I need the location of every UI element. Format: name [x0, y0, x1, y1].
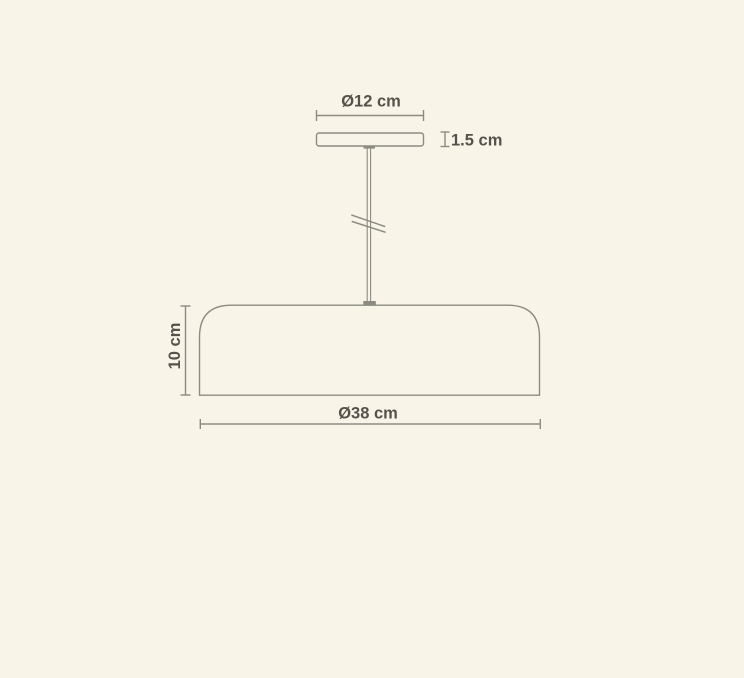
svg-text:1.5 cm: 1.5 cm	[451, 132, 502, 150]
svg-text:Ø38 cm: Ø38 cm	[338, 405, 398, 423]
svg-text:Ø12 cm: Ø12 cm	[341, 93, 401, 111]
svg-text:10 cm: 10 cm	[166, 323, 184, 370]
